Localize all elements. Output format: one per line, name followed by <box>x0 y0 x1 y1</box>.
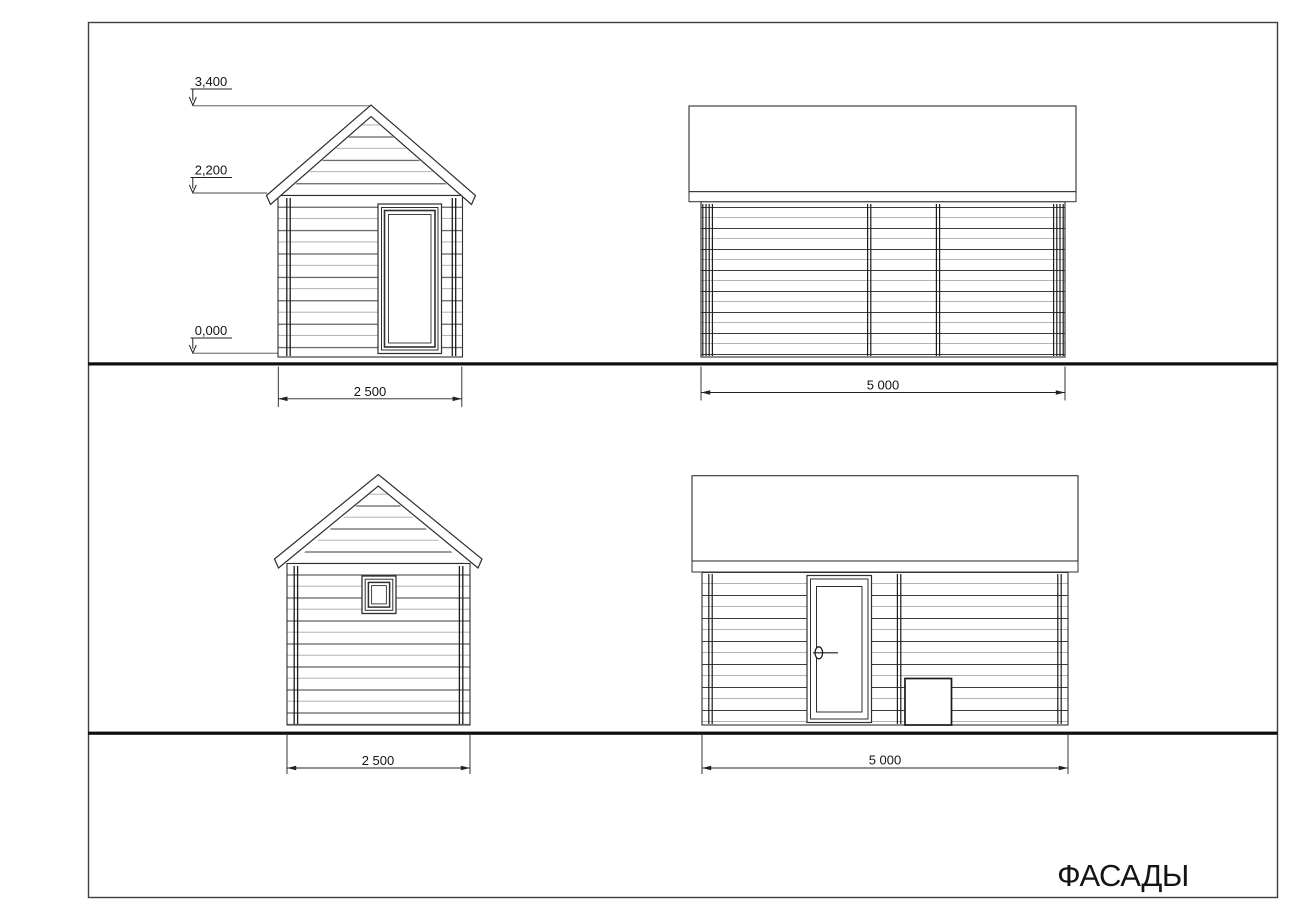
level-mark-ground: 0,000 <box>189 323 277 353</box>
back-elevation <box>275 475 483 726</box>
right-side-elevation <box>689 106 1076 357</box>
wall-siding <box>701 202 1065 357</box>
roof-fascia <box>692 561 1078 572</box>
roof-fascia <box>689 192 1076 202</box>
roof-slope <box>692 476 1078 561</box>
dimension-left-length: 5 000 <box>702 735 1068 774</box>
ground-line-upper <box>88 362 1278 365</box>
side-door <box>807 576 872 723</box>
dimension-left-length-label: 5 000 <box>869 753 902 768</box>
front-elevation <box>267 105 476 357</box>
ground-line-lower <box>88 732 1278 735</box>
drawing-frame <box>89 23 1278 898</box>
dimension-right-length: 5 000 <box>701 367 1065 401</box>
gable-siding <box>283 118 459 196</box>
wall-siding <box>702 572 1068 725</box>
level-mark-ridge: 3,400 <box>189 74 370 106</box>
roof-slope <box>689 106 1076 192</box>
left-side-elevation <box>692 476 1078 725</box>
level-mark-eaves-label: 2,200 <box>195 163 228 178</box>
dimension-front-width-label: 2 500 <box>354 384 387 399</box>
gable-window <box>362 576 396 614</box>
dimension-front-width: 2 500 <box>278 367 462 408</box>
level-mark-eaves: 2,200 <box>189 163 267 194</box>
dimension-right-length-label: 5 000 <box>867 378 900 393</box>
storage-box <box>905 679 952 726</box>
front-door <box>378 204 442 354</box>
dimension-back-width: 2 500 <box>287 735 470 774</box>
drawing-title: ФАСАДЫ <box>1057 858 1189 893</box>
level-mark-ridge-label: 3,400 <box>195 74 228 89</box>
dimension-back-width-label: 2 500 <box>362 753 395 768</box>
drawing-sheet: 3,400 2,200 0,000 <box>0 0 1300 919</box>
level-mark-ground-label: 0,000 <box>195 323 228 338</box>
